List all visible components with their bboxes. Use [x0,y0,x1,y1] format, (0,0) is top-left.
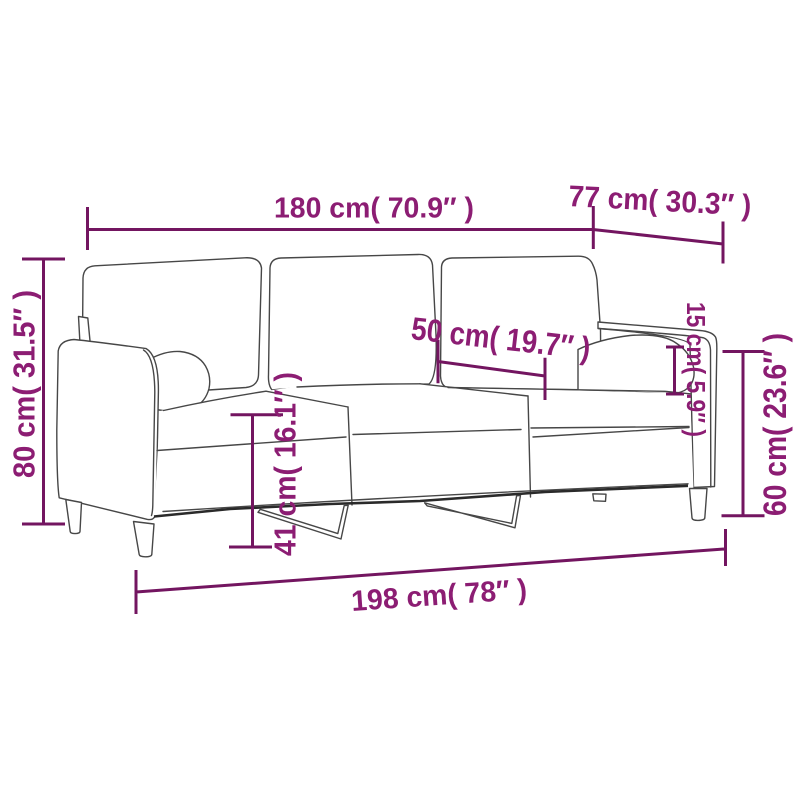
svg-text:15 cm( 5.9″ ): 15 cm( 5.9″ ) [681,302,711,437]
svg-text:60 cm( 23.6″ ): 60 cm( 23.6″ ) [757,333,793,516]
svg-text:41 cm( 16.1″ ): 41 cm( 16.1″ ) [268,372,303,556]
svg-text:180 cm( 70.9″ ): 180 cm( 70.9″ ) [274,193,474,225]
svg-text:80 cm( 31.5″ ): 80 cm( 31.5″ ) [7,290,42,478]
